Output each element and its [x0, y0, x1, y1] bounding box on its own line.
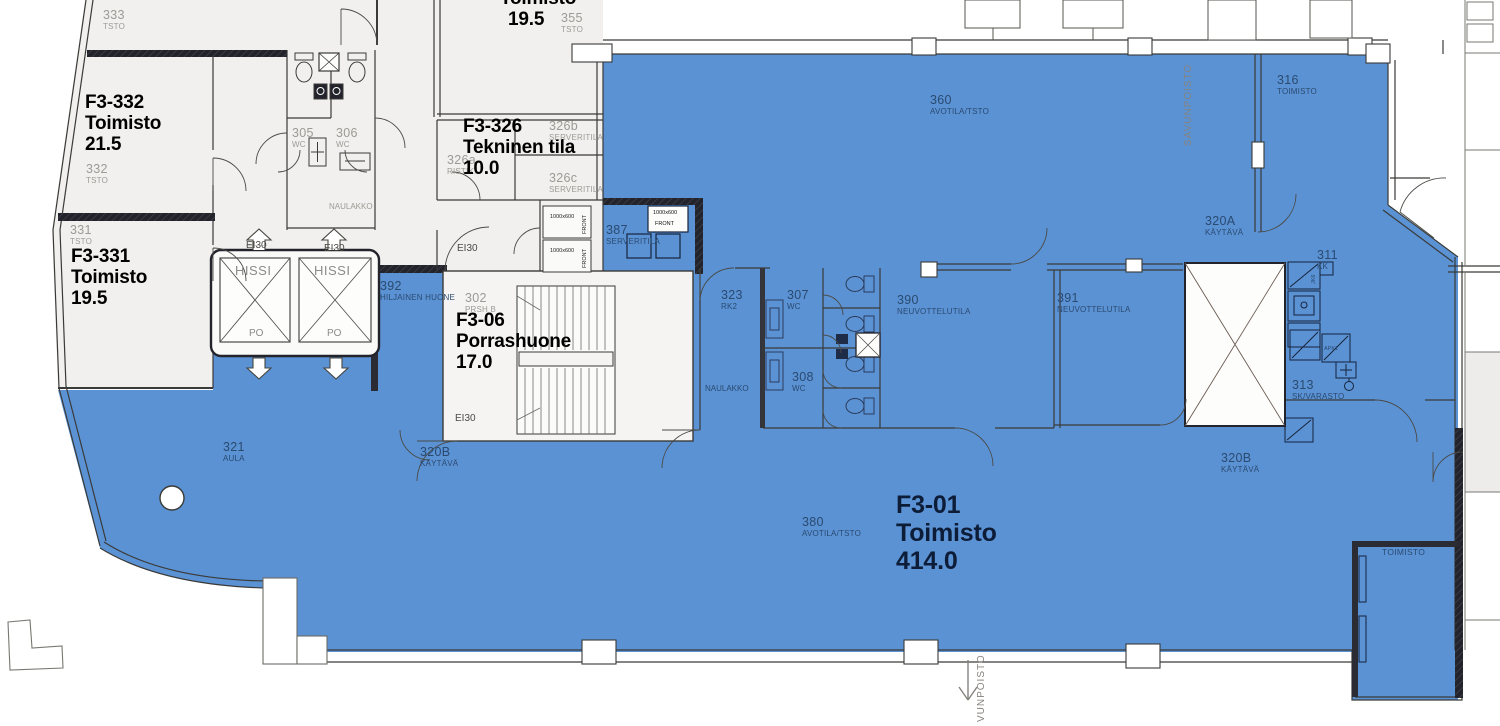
ei30-label-1: EI30: [246, 240, 267, 251]
shaft-box: [1185, 263, 1285, 426]
room-label-391: 391NEUVOTTELUTILA: [1057, 292, 1130, 315]
ei30-label-4: EI30: [455, 413, 476, 424]
room-label-323: 323RK2: [721, 289, 743, 312]
room-label-320b-left: 320BKÄYTÄVÄ: [420, 446, 458, 469]
toimisto-label-bottom-right: TOIMISTO: [1382, 548, 1425, 557]
naulakko-label-mid: NAULAKKO: [705, 385, 749, 394]
corner-column: [8, 620, 63, 670]
apk-label: APK1: [1324, 346, 1338, 352]
room-label-360: 360AVOTILA/TSTO: [930, 94, 989, 117]
rack-front-label-2: FRONT: [582, 249, 588, 268]
room-label-305: 305WC: [292, 127, 314, 150]
room-label-390: 390NEUVOTTELUTILA: [897, 294, 970, 317]
elevator-block: [211, 229, 379, 379]
rack-front-label-1: FRONT: [582, 215, 588, 234]
po-label-1: PO: [249, 328, 263, 339]
hissi-label-1: HISSI: [235, 264, 271, 278]
room-label-321: 321AULA: [223, 441, 245, 464]
rack-size-label-3: 1000x600: [653, 210, 677, 216]
room-label-326b: 326bSERVERITILA: [549, 120, 603, 143]
ei30-label-2: EI30: [324, 243, 345, 254]
room-label-320b-right: 320BKÄYTÄVÄ: [1221, 452, 1259, 475]
room-label-331: 331TSTO: [70, 224, 92, 247]
ei30-label-3: EI30: [457, 243, 478, 254]
aula-circle-column: [160, 486, 184, 510]
naulakko-label-left: NAULAKKO: [329, 203, 373, 212]
right-edge-rooms: [1465, 0, 1500, 650]
room-label-392: 392HILJAINEN HUONE: [380, 280, 455, 303]
room-label-316: 316TOIMISTO: [1277, 74, 1317, 97]
room-title-f3-01: F3-01Toimisto414.0: [896, 492, 997, 575]
room-label-326c: 326cSERVERITILA: [549, 172, 603, 195]
room-label-306: 306WC: [336, 127, 358, 150]
room-label-355: 355TSTO: [561, 12, 583, 35]
jk-label: JK6: [1311, 275, 1317, 284]
top-edge-boxes: [965, 0, 1352, 40]
room-title-f3-06: F3-06Porrashuone17.0: [456, 310, 571, 373]
room-label-387: 387SERVERITILA: [606, 224, 660, 247]
po-label-2: PO: [327, 328, 341, 339]
room-label-311: 311KK: [1317, 249, 1338, 272]
vunpoisto-arrow: [959, 660, 977, 700]
hissi-label-2: HISSI: [314, 264, 350, 278]
floor-plan-drawing: [0, 0, 1500, 726]
room-label-333: 333TSTO: [103, 9, 125, 32]
rack-size-label-2: 1000x600: [550, 248, 574, 254]
room-title-f3-331: F3-331Toimisto19.5: [71, 246, 147, 309]
room-label-308: 308WC: [792, 371, 814, 394]
room-title-f3-332: F3-332Toimisto21.5: [85, 92, 161, 155]
room-label-332: 332TSTO: [86, 163, 108, 186]
rack-size-label-1: 1000x600: [550, 214, 574, 220]
floor-plan-canvas: 333TSTO F3-332Toimisto21.5 332TSTO 331TS…: [0, 0, 1500, 726]
room-label-307: 307WC: [787, 289, 809, 312]
vunpoisto-label: VUNPOISTO: [976, 654, 987, 722]
room-label-380: 380AVOTILA/TSTO: [802, 516, 861, 539]
room-label-320a: 320AKÄYTÄVÄ: [1205, 215, 1243, 238]
room-label-313: 313SK/VARASTO: [1292, 379, 1344, 402]
savunpoisto-label: SAVUNPOISTO: [1183, 64, 1194, 146]
